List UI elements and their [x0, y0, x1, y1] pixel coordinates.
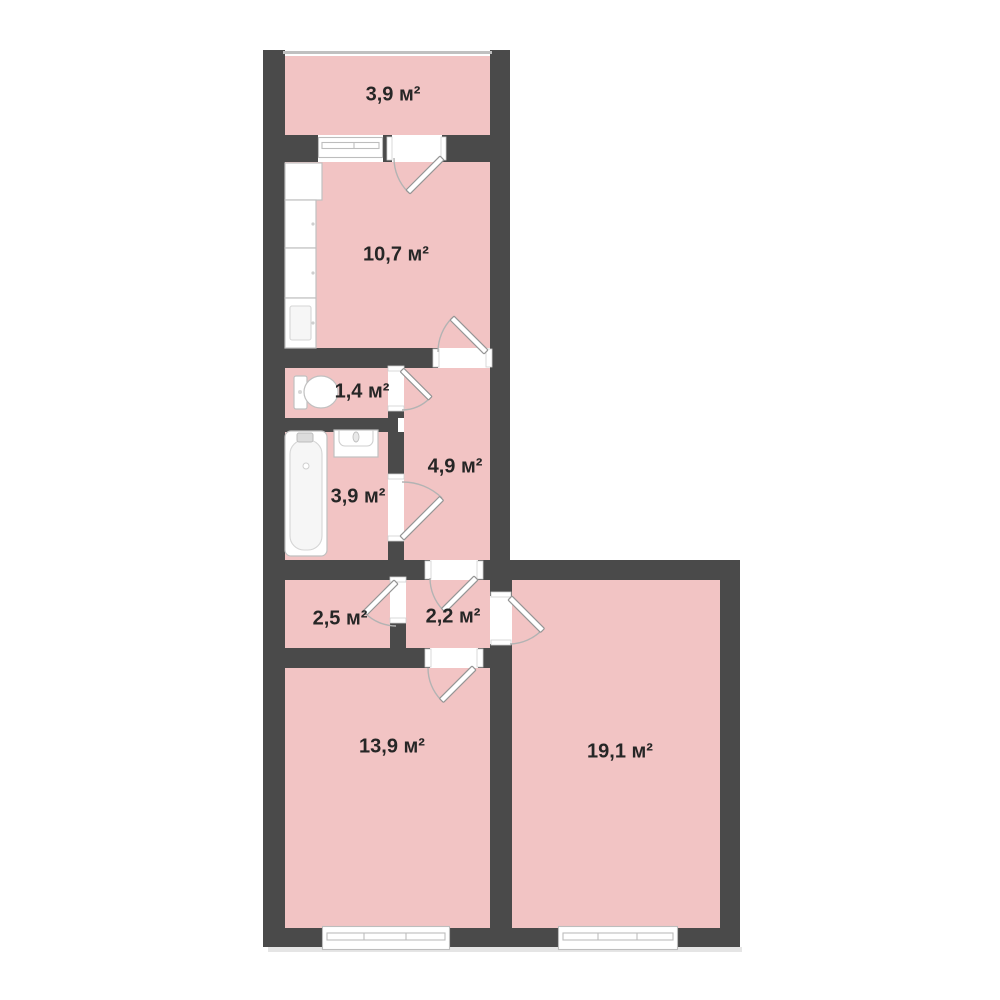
- window-icon: [559, 927, 678, 950]
- window-icon: [319, 138, 383, 158]
- toilet-icon: [294, 376, 338, 409]
- floor-plan: 3,9 м² 10,7 м² 1,4 м² 4,9 м² 3,9 м² 2,5 …: [0, 0, 1000, 1000]
- window-icon: [323, 927, 450, 950]
- door-bathroom-icon: [400, 482, 444, 540]
- room-balcony-label: 3,9 м²: [366, 84, 421, 107]
- door-jambs: [387, 137, 511, 667]
- room-kitchen-label: 10,7 м²: [363, 244, 429, 267]
- plan-symbols: [0, 0, 1000, 1000]
- bathroom-sink-icon: [334, 430, 378, 457]
- room-inner-hall-label: 2,2 м²: [426, 606, 481, 629]
- room-bedroom-label: 13,9 м²: [359, 736, 425, 759]
- door-bedroom-icon: [428, 666, 476, 702]
- room-storage-label: 2,5 м²: [313, 608, 368, 631]
- door-kitchen-icon: [438, 316, 488, 354]
- door-living-room-icon: [508, 596, 544, 644]
- door-balcony-icon: [394, 156, 444, 194]
- room-wc-label: 1,4 м²: [335, 381, 390, 404]
- kitchen-cabinets-icon: [285, 163, 322, 348]
- bathtub-icon: [285, 431, 327, 556]
- room-hallway-label: 4,9 м²: [428, 456, 483, 479]
- room-bathroom-label: 3,9 м²: [331, 486, 386, 509]
- room-living-room-label: 19,1 м²: [587, 741, 653, 764]
- door-wc-icon: [400, 368, 432, 410]
